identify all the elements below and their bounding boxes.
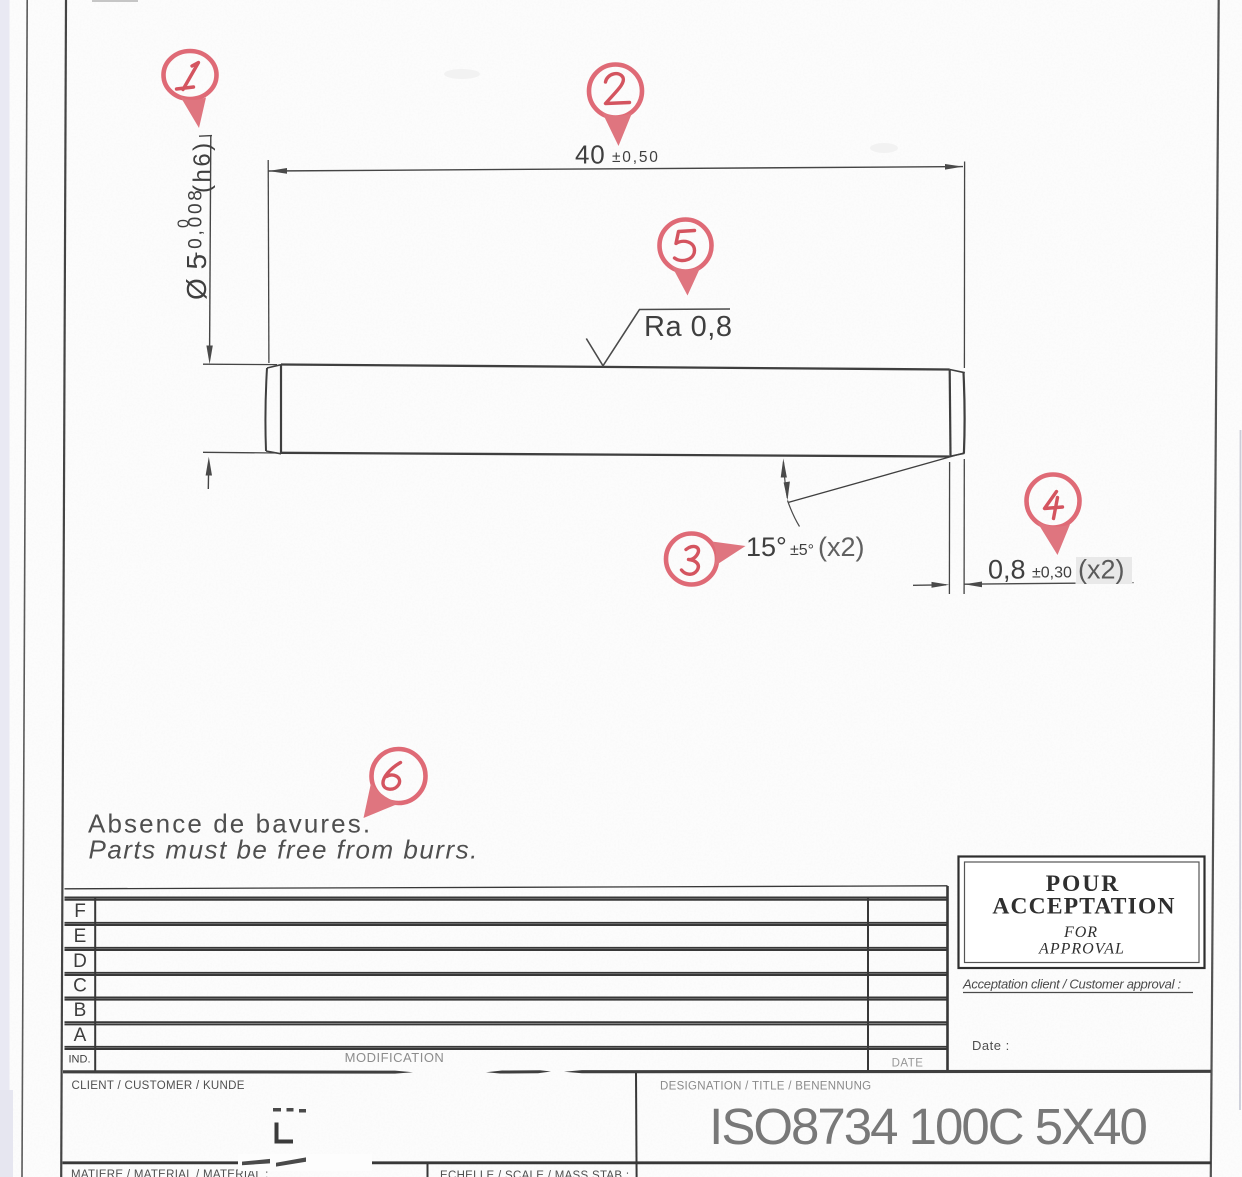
svg-text:ISO8734 100C 5X40: ISO8734 100C 5X40 (709, 1098, 1146, 1155)
svg-text:MODIFICATION: MODIFICATION (345, 1050, 445, 1065)
svg-text:IND.: IND. (69, 1054, 91, 1066)
svg-text:Date :: Date : (972, 1038, 1010, 1053)
svg-text:APPROVAL: APPROVAL (1038, 941, 1125, 958)
svg-text:±0,50: ±0,50 (612, 149, 660, 166)
svg-text:F: F (74, 901, 86, 922)
svg-text:ACCEPTATION: ACCEPTATION (992, 894, 1175, 920)
svg-text:(h6): (h6) (189, 140, 216, 193)
svg-text:C: C (73, 976, 87, 997)
svg-text:(x2): (x2) (1078, 555, 1125, 585)
svg-text:40: 40 (575, 140, 606, 170)
svg-text:FOR: FOR (1063, 924, 1098, 941)
svg-text:A: A (74, 1025, 87, 1046)
svg-text:0,8: 0,8 (988, 555, 1026, 585)
svg-text:D: D (73, 951, 87, 972)
svg-text:ECHELLE / SCALE / MASS STAB :: ECHELLE / SCALE / MASS STAB : (440, 1170, 629, 1177)
svg-text:15°: 15° (746, 532, 787, 562)
svg-text:0: 0 (176, 219, 193, 228)
svg-text:±0,30: ±0,30 (1032, 565, 1072, 582)
svg-text:Ø 5: Ø 5 (181, 253, 212, 300)
svg-text:Ra 0,8: Ra 0,8 (644, 311, 732, 343)
svg-text:±5°: ±5° (790, 542, 814, 559)
svg-text:B: B (74, 1000, 87, 1021)
svg-text:Acceptation client / Customer: Acceptation client / Customer approval : (962, 977, 1181, 992)
svg-text:DESIGNATION / TITLE / BENENNUN: DESIGNATION / TITLE / BENENNUNG (660, 1081, 871, 1093)
svg-text:CLIENT / CUSTOMER / KUNDE: CLIENT / CUSTOMER / KUNDE (72, 1080, 245, 1092)
svg-text:(x2): (x2) (818, 532, 865, 562)
svg-text:E: E (74, 926, 87, 947)
svg-text:DATE: DATE (892, 1058, 924, 1070)
svg-text:Parts must be free from burrs.: Parts must be free from burrs. (89, 835, 479, 865)
